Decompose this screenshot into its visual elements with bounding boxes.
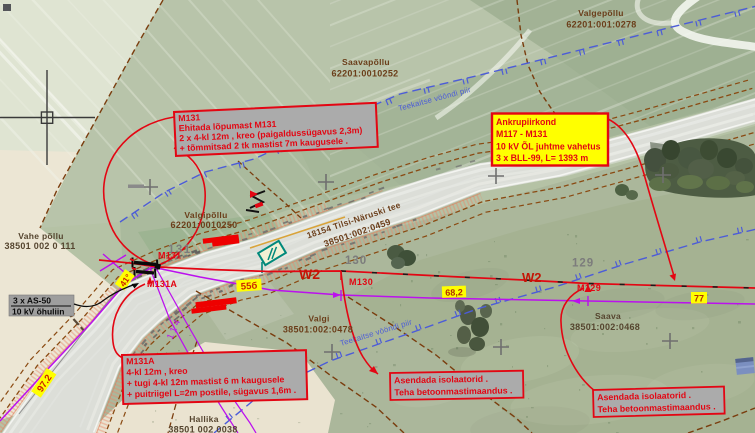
svg-text:Asendada isolaatorid .: Asendada isolaatorid . (394, 374, 488, 386)
svg-text:129: 129 (572, 258, 594, 270)
svg-text:38501:002:0478: 38501:002:0478 (283, 325, 353, 335)
svg-text:Ankrupiirkond: Ankrupiirkond (496, 117, 556, 127)
svg-text:38501 002 0 111: 38501 002 0 111 (4, 241, 75, 251)
svg-text:W2: W2 (299, 266, 320, 282)
svg-text:62201:0010250: 62201:0010250 (171, 220, 238, 230)
svg-text:10 kV ÕL juhtme vahetus: 10 kV ÕL juhtme vahetus (496, 142, 601, 152)
svg-text:M130: M130 (349, 277, 373, 287)
svg-text:62201:0010252: 62201:0010252 (332, 68, 399, 78)
svg-text:55б: 55б (240, 280, 257, 292)
svg-text:Vahe põllu: Vahe põllu (18, 231, 64, 241)
svg-text:38501 002 0038: 38501 002 0038 (168, 425, 237, 433)
svg-text:130: 130 (345, 255, 367, 267)
svg-text:62201:001:0278: 62201:001:0278 (566, 20, 636, 30)
svg-text:Saava: Saava (595, 311, 621, 321)
svg-text:77: 77 (694, 294, 704, 304)
svg-text:M129: M129 (577, 283, 601, 293)
svg-text:Valgi: Valgi (308, 314, 329, 324)
svg-text:M131A: M131A (147, 279, 177, 289)
svg-text:Valgipõllu: Valgipõllu (184, 210, 227, 220)
svg-text:Hallika: Hallika (189, 414, 219, 424)
svg-text:Teha betoonmastimaandus .: Teha betoonmastimaandus . (394, 385, 512, 397)
svg-text:M131A: M131A (126, 356, 155, 367)
svg-text:M131: M131 (158, 251, 181, 261)
svg-text:10 kV õhuliin: 10 kV õhuliin (12, 307, 64, 317)
svg-text:38501:002:0468: 38501:002:0468 (570, 322, 640, 332)
svg-text:3 x AS-50: 3 x AS-50 (13, 296, 51, 306)
svg-text:W2: W2 (522, 270, 542, 285)
svg-text:68,2: 68,2 (445, 287, 463, 298)
svg-text:Saavapõllu: Saavapõllu (342, 57, 390, 67)
svg-text:3 x BLL-99, L= 1393 m: 3 x BLL-99, L= 1393 m (496, 153, 588, 163)
svg-text:4-kl 12m , kreo: 4-kl 12m , kreo (126, 366, 188, 378)
svg-text:Valgepõllu: Valgepõllu (578, 8, 624, 18)
svg-text:M117 - M131: M117 - M131 (496, 129, 547, 139)
